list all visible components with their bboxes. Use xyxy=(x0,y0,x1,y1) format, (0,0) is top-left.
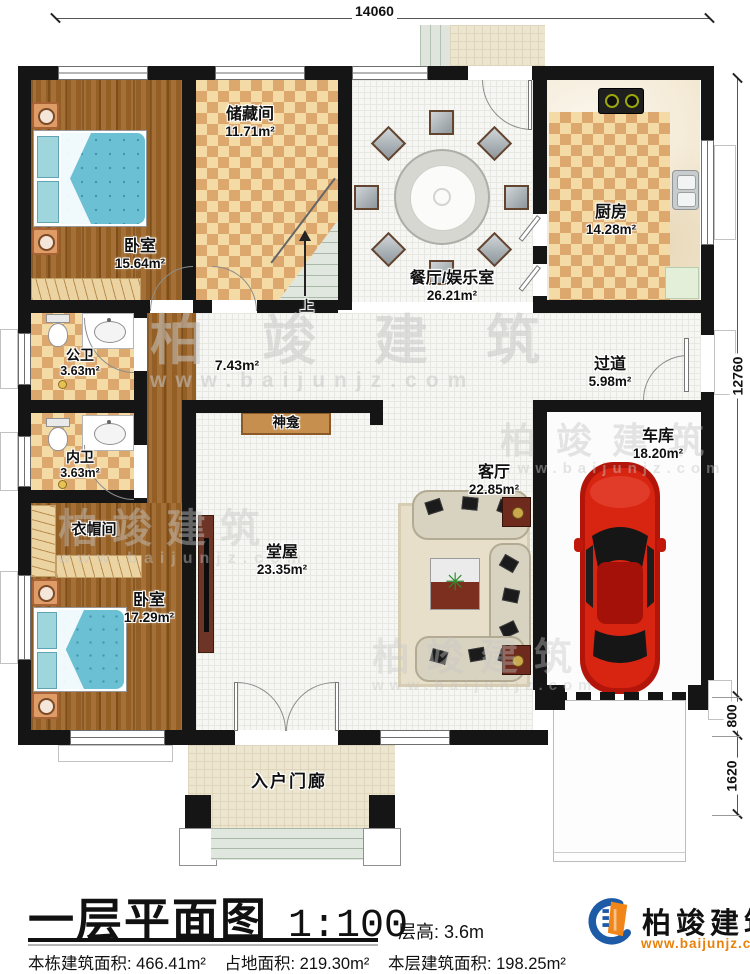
window-bedroom2-bottom xyxy=(70,730,165,745)
porch-steps xyxy=(211,828,363,860)
room-label-cloakroom: 衣帽间 xyxy=(71,522,116,539)
brand-logo-icon xyxy=(583,893,637,949)
nightstand xyxy=(32,228,59,255)
brand-website: www.baijunjz.com xyxy=(641,936,750,951)
kitchen-sink-icon xyxy=(672,170,699,210)
window-kitchen-right xyxy=(701,140,714,245)
dimension-extension xyxy=(712,815,740,816)
cloak-rack-vertical xyxy=(31,505,56,577)
wall-bath-divider xyxy=(18,400,147,413)
floor-drain-icon xyxy=(58,380,67,389)
building-area-label: 本栋建筑面积: 466.41m² xyxy=(28,955,206,973)
dimension-label-top: 14060 xyxy=(352,3,397,19)
window-storage-top xyxy=(215,66,305,80)
passage-floor-lower xyxy=(147,401,182,503)
room-label-storage: 储藏间 11.71m² xyxy=(225,106,275,139)
pillow xyxy=(37,136,59,178)
side-door-opening xyxy=(701,335,714,392)
dining-chair xyxy=(354,185,379,210)
entry-door-leaf xyxy=(335,682,339,731)
window-public-bath-left xyxy=(18,333,31,385)
window-sill xyxy=(714,145,736,240)
wall-hall-top-stub xyxy=(370,400,383,425)
window-hall-bottom xyxy=(380,730,450,745)
window-sill xyxy=(0,329,18,389)
watermark: 柏竣建筑 www.baijunjz.com xyxy=(500,412,725,477)
room-label-dining: 餐厅/娱乐室 26.21m² xyxy=(410,270,494,303)
watermark: 柏竣建筑 www.baijunjz.com xyxy=(150,296,598,393)
plant-icon: ✳ xyxy=(431,571,479,595)
nightstand xyxy=(32,102,59,129)
dining-table xyxy=(394,149,490,245)
page-title: 一层平面图 xyxy=(28,884,268,950)
room-label-public-bath: 公卫 3.63m² xyxy=(60,348,100,378)
room-label-hallway: 过道 5.98m² xyxy=(589,356,632,389)
window-dining-top xyxy=(352,66,428,80)
toilet-icon xyxy=(46,418,70,452)
room-label-private-bath: 内卫 3.63m² xyxy=(60,450,100,480)
dimension-extension xyxy=(712,697,740,698)
toilet-icon xyxy=(46,314,70,348)
footer-title-row: 一层平面图 1:100 xyxy=(28,884,408,950)
driveway xyxy=(553,700,686,862)
back-door-leaf xyxy=(528,80,532,130)
dimension-label-right: 12760 xyxy=(729,354,745,399)
stairs-up-arrowhead-icon xyxy=(299,230,311,241)
window-sill xyxy=(0,432,18,491)
room-label-garage: 车库 18.20m² xyxy=(633,428,683,461)
back-door-opening xyxy=(468,66,532,80)
bed xyxy=(33,130,147,227)
entry-door-opening xyxy=(235,730,338,745)
room-label-corridor: 7.43m² xyxy=(215,358,259,374)
room-label-bedroom1: 卧室 15.64m² xyxy=(115,238,165,271)
back-porch-floor xyxy=(450,25,545,66)
dining-table-center xyxy=(433,188,451,206)
window-sill xyxy=(0,571,18,664)
dimension-label-800: 800 xyxy=(724,701,740,730)
porch-column-base xyxy=(363,828,401,866)
porch-column xyxy=(369,795,395,828)
back-porch-steps xyxy=(420,25,450,66)
floor-drain-icon xyxy=(58,480,67,489)
stove-icon xyxy=(598,88,644,114)
dimension-label-1620: 1620 xyxy=(724,757,740,794)
area-stats-row: 本栋建筑面积: 466.41m² 占地面积: 219.30m² 本层建筑面积: … xyxy=(28,950,566,974)
wall-hall-top xyxy=(196,400,383,413)
porch-column xyxy=(185,795,211,828)
wall-garage-top xyxy=(533,400,714,412)
wall-storage-right xyxy=(338,80,352,310)
floor-area-label: 本层建筑面积: 198.25m² xyxy=(388,955,566,973)
window-bedroom2-left xyxy=(18,575,31,660)
floor-plan-canvas: ✳ xyxy=(0,0,750,974)
pillow xyxy=(37,612,57,649)
nightstand xyxy=(32,579,59,606)
dimension-extension xyxy=(712,736,740,737)
room-label-bedroom2: 卧室 17.29m² xyxy=(124,592,174,625)
room-label-living: 客厅 22.85m² xyxy=(469,464,519,497)
driveway-bottom-line xyxy=(553,852,686,853)
coffee-table: ✳ xyxy=(430,558,480,610)
window-bedroom1-top xyxy=(58,66,148,80)
room-label-shrine: 神龛 xyxy=(273,415,300,430)
side-door-leaf xyxy=(684,338,689,392)
floor-height-label: 层高: 3.6m xyxy=(398,918,484,944)
wardrobe xyxy=(31,278,141,302)
side-table xyxy=(502,497,531,527)
kitchen-counter xyxy=(665,267,699,299)
private-bath-door-opening xyxy=(134,445,147,498)
dining-chair xyxy=(429,110,454,135)
public-bath-door-opening xyxy=(134,318,147,371)
room-label-porch: 入户门廊 xyxy=(251,772,327,791)
land-area-label: 占地面积: 219.30m² xyxy=(224,955,369,973)
watermark: 柏竣建筑 www.baijunjz.com xyxy=(372,626,597,694)
pillow xyxy=(37,181,59,223)
dining-chair xyxy=(504,185,529,210)
scale-label: 1:100 xyxy=(288,904,408,949)
room-label-hall: 堂屋 23.35m² xyxy=(257,544,307,577)
stairs-up-label: 上 xyxy=(300,299,314,315)
window-private-bath-left xyxy=(18,436,31,487)
nightstand xyxy=(32,692,59,719)
room-label-kitchen: 厨房 14.28m² xyxy=(586,204,636,237)
window-sill xyxy=(58,745,173,762)
entry-door-leaf xyxy=(234,682,238,731)
stairs-up-arrow-icon xyxy=(304,240,306,296)
bed xyxy=(33,607,127,692)
pillow xyxy=(37,652,57,689)
